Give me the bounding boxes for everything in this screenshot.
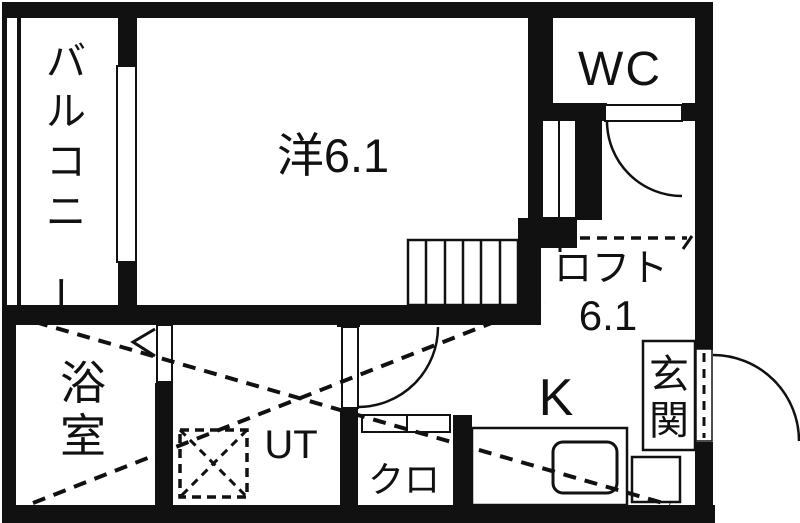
kitchen-counter bbox=[472, 428, 627, 505]
wall-mid-horizontal bbox=[2, 305, 541, 325]
label-loft-area: 6.1 bbox=[579, 292, 637, 339]
wall-bottom bbox=[2, 505, 715, 523]
wall-left-lower bbox=[2, 305, 16, 523]
entrance-door-frame bbox=[696, 349, 712, 441]
wall-right-lower bbox=[695, 442, 713, 523]
wall-balcony-divider-upper bbox=[118, 18, 137, 66]
label-western-room: 洋6.1 bbox=[277, 129, 389, 182]
label-closet: クロ bbox=[368, 459, 440, 500]
label-ut: UT bbox=[264, 423, 317, 467]
floor-plan: 洋6.1 WC ロフト 6.1 K UT クロ バルコニー 浴室 玄関 bbox=[0, 0, 800, 523]
balcony-rail-inner bbox=[17, 18, 21, 305]
label-kitchen: K bbox=[539, 369, 574, 427]
wall-closet-right bbox=[453, 415, 472, 505]
bath-door-panel bbox=[157, 325, 172, 382]
wall-room-right-thin bbox=[528, 103, 542, 228]
balcony-rail-outer bbox=[2, 18, 7, 312]
wall-corridor-pillar bbox=[577, 103, 602, 220]
wall-stair-step bbox=[518, 218, 577, 248]
wall-stair-right bbox=[518, 245, 541, 307]
wall-right-upper bbox=[695, 2, 713, 350]
staircase bbox=[408, 240, 518, 305]
wall-hall-upper bbox=[337, 305, 360, 327]
label-bath: 浴室 bbox=[60, 357, 106, 462]
balcony-window bbox=[117, 66, 136, 262]
wall-room-right-thick bbox=[528, 18, 553, 103]
corridor-shelf bbox=[542, 120, 576, 218]
label-loft: ロフト bbox=[554, 248, 668, 290]
wall-closet-left bbox=[340, 408, 358, 505]
wc-door-leaf bbox=[605, 105, 682, 121]
label-wc: WC bbox=[578, 43, 662, 96]
hall-door-leaf bbox=[342, 327, 358, 408]
wall-top bbox=[2, 2, 713, 18]
wall-wc-bottom-right bbox=[682, 103, 697, 121]
floor-plan-page: 洋6.1 WC ロフト 6.1 K UT クロ バルコニー 浴室 玄関 bbox=[0, 0, 800, 523]
wall-bath-right bbox=[155, 383, 173, 505]
